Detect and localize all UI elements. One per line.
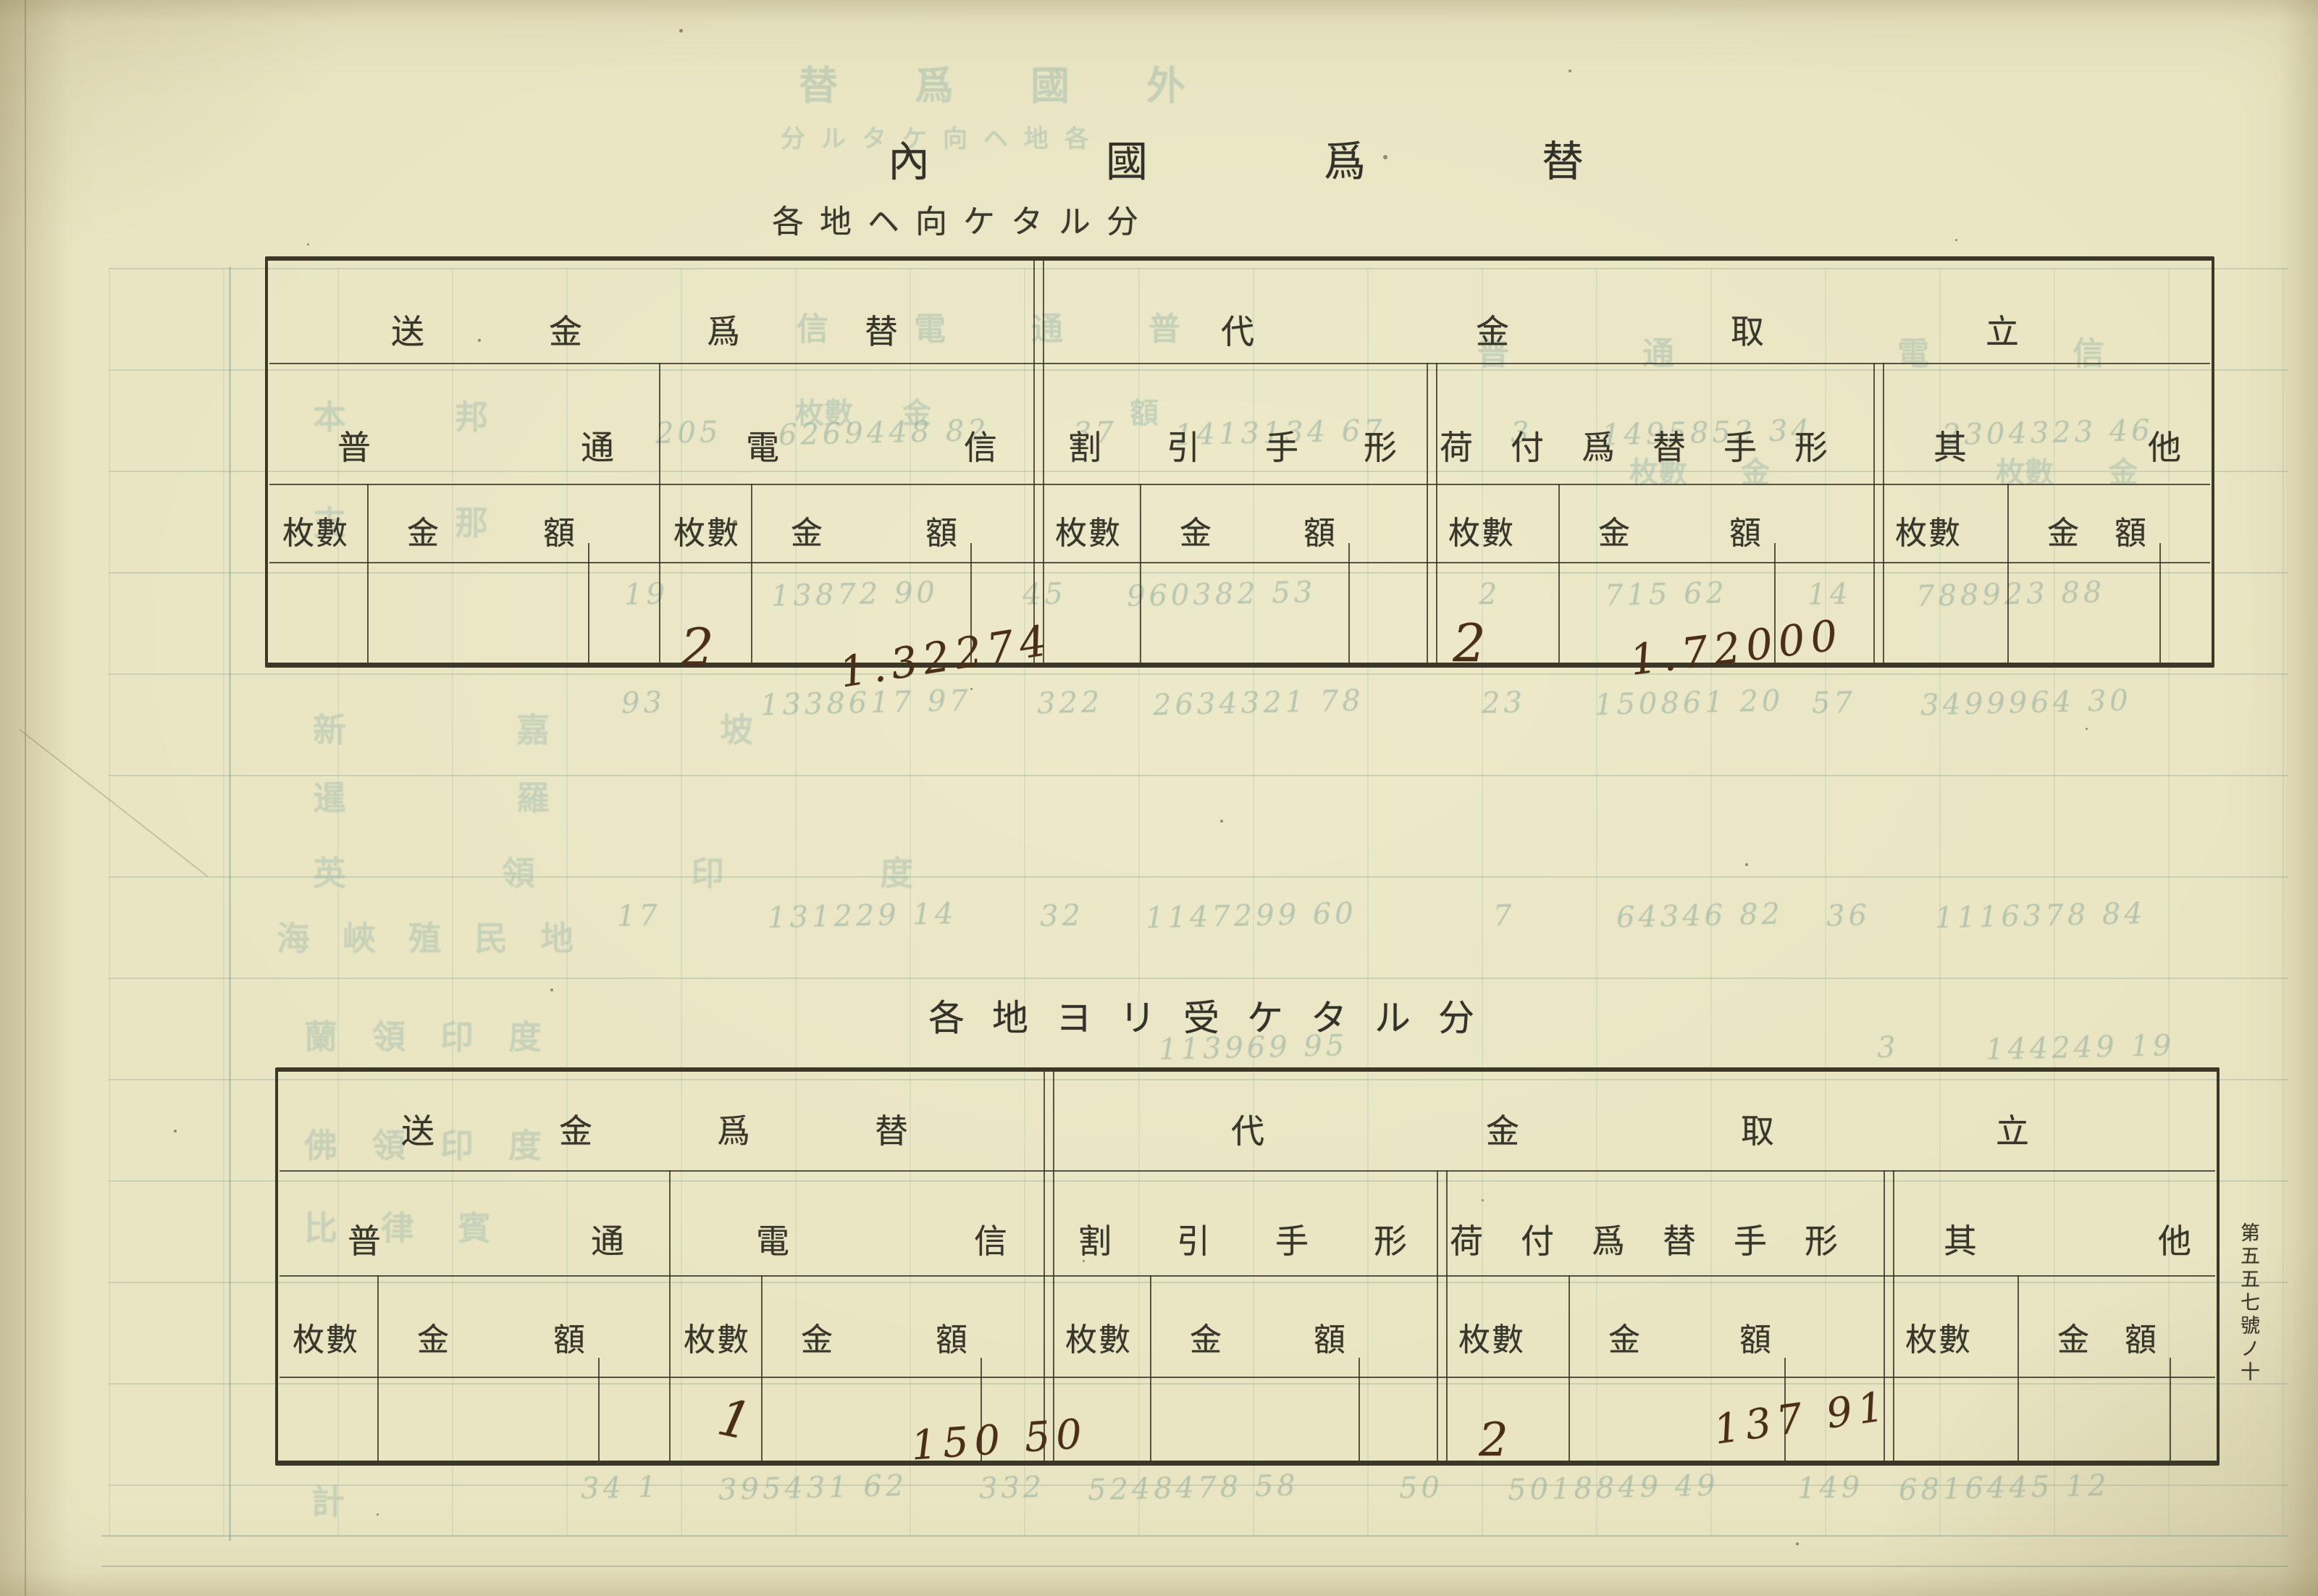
paper-speck (1220, 820, 1223, 823)
col-header-amount-gaku: 額 (543, 507, 575, 553)
col-header-amount-kin: 金 (2057, 1314, 2089, 1360)
sent-denshin-count-value: 2 (681, 617, 720, 678)
sent-nizuke-amount-value: 1.72000 (1627, 610, 1846, 685)
table-gridline (1893, 1170, 1894, 1461)
bleed-place-name: 蘭領印度 (304, 1011, 576, 1059)
col-header-amount-kin: 金 (1190, 1314, 1222, 1360)
col-header-amount-kin: 金 (1598, 507, 1630, 553)
col-header-count: 枚數 (1065, 1314, 1132, 1360)
header-sub-waribiki: 割引手形 (1078, 1215, 1472, 1263)
paper-speck (1569, 70, 1571, 72)
header-group-left: 送金爲替 (391, 306, 1022, 353)
table-gridline (269, 363, 2210, 364)
section-title-received: 各地ヨリ受ケタル分 (928, 989, 1502, 1041)
page-title: 內國爲替 (888, 127, 1760, 188)
col-header-count: 枚數 (684, 1314, 750, 1360)
col-header-count: 枚數 (673, 507, 740, 553)
table-gridline (377, 1275, 379, 1461)
paper-fold (19, 728, 208, 877)
bleed-through-line (101, 1535, 2288, 1537)
header-sub-nizuke: 荷付爲替手形 (1440, 421, 1865, 469)
table-gridline (1043, 1072, 1045, 1461)
header-sub-nizuke: 荷付爲替手形 (1450, 1215, 1876, 1263)
table-gridline (1348, 543, 1350, 663)
paper-speck (377, 1513, 379, 1516)
bleed-handwritten-number: 5018849 49 (1508, 1469, 1720, 1508)
table-gridline (761, 1275, 763, 1461)
col-header-count: 枚數 (293, 1314, 359, 1360)
bleed-handwritten-number: 149 (1797, 1471, 1863, 1505)
col-header-count: 枚數 (1055, 507, 1122, 553)
col-header-count: 枚數 (282, 507, 349, 553)
col-header-amount-gaku: 額 (1303, 507, 1335, 553)
bleed-handwritten-number: 332 (978, 1471, 1045, 1505)
table-gridline (669, 1170, 671, 1461)
bleed-handwritten-number: 17 (616, 899, 661, 933)
bleed-handwritten-number: 2634321 78 (1153, 684, 1365, 723)
col-header-count: 枚數 (1905, 1314, 1972, 1360)
bleed-handwritten-number: 93 (621, 686, 665, 720)
col-header-amount-gaku: 額 (1729, 507, 1761, 553)
table-gridline (1873, 363, 1875, 663)
table-gridline (1437, 1170, 1438, 1461)
col-header-amount-gaku: 額 (936, 1314, 967, 1360)
col-header-amount-gaku: 額 (925, 507, 957, 553)
col-header-count: 枚數 (1895, 507, 1962, 553)
header-sub-waribiki: 割引手形 (1068, 421, 1462, 469)
table-gridline (1359, 1358, 1360, 1461)
paper-speck (550, 988, 553, 991)
header-group-left: 送金爲替 (401, 1105, 1033, 1153)
section-title-sent: 各地ヘ向ケタル分 (772, 196, 1154, 242)
bleed-place-name: 計 (311, 1476, 345, 1524)
table-gridline (2007, 484, 2009, 663)
bleed-handwritten-number: 131229 14 (768, 897, 957, 935)
table-gridline (751, 484, 752, 663)
paper-speck (2172, 442, 2175, 444)
document-page: 替爲國外分ルタケ向ヘ地各信電通普普通電信枚數金額枚數金枚數金本邦支那新嘉坡暹羅英… (0, 0, 2318, 1596)
col-header-count: 枚數 (1448, 507, 1515, 553)
bleed-title-text: 爲 (915, 54, 954, 111)
table-gridline (1150, 1275, 1151, 1461)
table-gridline (280, 1170, 2215, 1172)
received-table: 送金爲替代金取立普通電信割引手形荷付爲替手形其他枚數金額枚數金額枚數金額枚數金額… (275, 1067, 2220, 1466)
table-gridline (269, 484, 2210, 485)
bleed-handwritten-number: 395431 62 (718, 1469, 908, 1507)
bleed-handwritten-number: 23 (1481, 686, 1526, 720)
bleed-place-name: 暹羅 (313, 772, 720, 820)
header-group-right: 代金取立 (1221, 306, 2241, 353)
table-gridline (1436, 363, 1437, 663)
table-gridline (659, 363, 660, 663)
paper-speck (1482, 1199, 1484, 1201)
bleed-through-line (101, 1566, 2288, 1567)
bleed-handwritten-number: 150861 20 (1595, 684, 1784, 722)
table-gridline (2170, 1358, 2171, 1461)
paper-speck (733, 520, 737, 524)
table-gridline (280, 1275, 2215, 1277)
table-gridline (2159, 543, 2161, 663)
bleed-handwritten-number: 32 (1039, 899, 1084, 933)
table-gridline (588, 543, 589, 663)
table-gridline (1427, 363, 1428, 663)
header-sub-sonota: 其他 (1933, 421, 2318, 469)
table-gridline (367, 484, 369, 663)
paper-speck (2086, 728, 2088, 730)
table-gridline (1446, 1170, 1448, 1461)
col-header-amount-gaku: 額 (1739, 1314, 1771, 1360)
header-group-right: 代金取立 (1231, 1105, 2251, 1153)
bleed-through-line (229, 266, 231, 1541)
bleed-handwritten-number: 1116378 84 (1935, 897, 2147, 936)
paper-speck (478, 339, 481, 342)
bleed-handwritten-number: 3499964 30 (1920, 684, 2133, 723)
bleed-handwritten-number: 1147299 60 (1146, 897, 1358, 936)
table-gridline (2017, 1275, 2019, 1461)
table-gridline (1883, 363, 1884, 663)
paper-crease (25, 0, 26, 1596)
col-header-amount-kin: 金 (801, 1314, 833, 1360)
col-header-amount-gaku: 額 (553, 1314, 585, 1360)
header-sub-sonota: 其他 (1944, 1215, 2318, 1263)
bleed-handwritten-number: 50 (1398, 1471, 1443, 1505)
paper-speck (174, 1130, 177, 1133)
table-gridline (1558, 484, 1560, 663)
col-header-amount-gaku: 額 (2115, 507, 2146, 553)
table-gridline (280, 1377, 2215, 1378)
received-nizuke-amount-value: 137 91 (1711, 1382, 1893, 1453)
bleed-handwritten-number: 5248478 58 (1088, 1469, 1300, 1508)
bleed-handwritten-number: 34 1 (580, 1471, 660, 1505)
paper-speck (1955, 239, 1957, 241)
sent-table: 送金爲替代金取立普通電信割引手形荷付爲替手形其他枚數金額枚數金額枚數金額枚數金額… (265, 256, 2214, 668)
bleed-title-text: 外 (1146, 54, 1185, 111)
col-header-amount-kin: 金 (1180, 507, 1212, 553)
paper-speck (1383, 155, 1387, 159)
bleed-place-name: 英領印度 (313, 847, 1069, 895)
paper-speck (307, 243, 309, 245)
col-header-count: 枚數 (1458, 1314, 1525, 1360)
bleed-handwritten-number: 6816445 12 (1899, 1469, 2111, 1508)
received-nizuke-count-value: 2 (1479, 1414, 1514, 1467)
received-denshin-amount-value: 150 50 (910, 1411, 1089, 1470)
bleed-handwritten-number: 144249 19 (1986, 1029, 2175, 1067)
col-header-amount-kin: 金 (1608, 1314, 1640, 1360)
table-gridline (598, 1358, 600, 1461)
paper-speck (1083, 1260, 1085, 1262)
table-gridline (1569, 1275, 1570, 1461)
col-header-amount-kin: 金 (2047, 507, 2079, 553)
bleed-handwritten-number: 36 (1826, 899, 1870, 933)
table-gridline (1053, 1072, 1054, 1461)
col-header-amount-gaku: 額 (1314, 1314, 1345, 1360)
table-gridline (269, 562, 2210, 563)
bleed-handwritten-number: 3 (1876, 1031, 1899, 1065)
bleed-title-text: 國 (1030, 54, 1070, 111)
bleed-handwritten-number: 322 (1036, 686, 1103, 721)
bleed-place-name: 海峽殖民地 (277, 912, 606, 960)
bleed-handwritten-number: 57 (1811, 686, 1856, 720)
paper-speck (679, 29, 683, 33)
col-header-amount-kin: 金 (417, 1314, 449, 1360)
col-header-amount-gaku: 額 (2125, 1314, 2157, 1360)
sent-nizuke-count-value: 2 (1453, 613, 1492, 673)
bleed-handwritten-number: 7 (1492, 899, 1515, 933)
paper-speck (1796, 1542, 1799, 1545)
col-header-amount-kin: 金 (791, 507, 823, 553)
bleed-handwritten-number: 64346 82 (1616, 897, 1784, 934)
received-denshin-count-value: 1 (713, 1387, 762, 1453)
table-gridline (1140, 484, 1141, 663)
paper-speck (1745, 863, 1748, 866)
bleed-title-text: 替 (799, 54, 838, 111)
col-header-amount-kin: 金 (407, 507, 439, 553)
paper-speck (970, 688, 973, 690)
